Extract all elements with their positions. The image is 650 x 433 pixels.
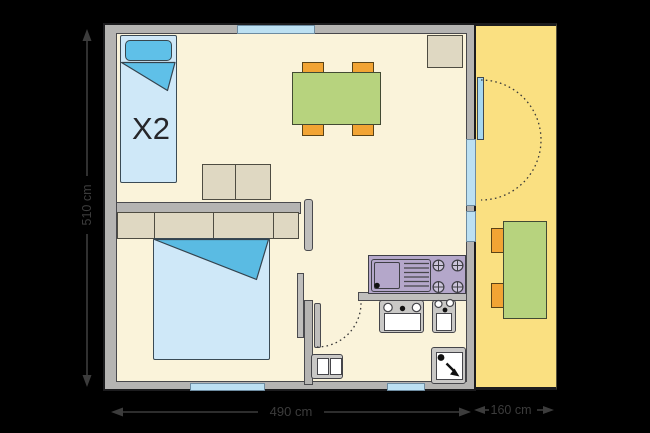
wardrobe-icon	[117, 212, 299, 239]
pillow-icon	[125, 40, 172, 61]
toilet-lid	[317, 358, 329, 375]
dimension-terrace-label: 160 cm	[484, 402, 538, 417]
window-icon	[387, 383, 425, 392]
bedroom-door-leaf	[304, 199, 313, 251]
toilet-lid	[330, 358, 342, 375]
terrace-floor	[476, 23, 557, 390]
cupboard-icon	[427, 35, 463, 68]
window-icon	[237, 25, 315, 34]
window-icon	[466, 139, 476, 206]
wardrobe-divider	[154, 213, 155, 238]
washbasin-bowl	[436, 313, 452, 332]
double-bed-icon	[153, 238, 270, 360]
bathroom-panel	[297, 273, 304, 338]
sink-bowl	[374, 262, 400, 289]
dimension-left-label: 510 cm	[79, 178, 95, 232]
floor-plan: X2 510 cm 490 cm 160 cm	[0, 0, 650, 433]
washbasin-bowl	[384, 313, 421, 331]
shower-tray	[436, 352, 463, 380]
window-icon	[190, 383, 265, 392]
window-icon	[466, 211, 476, 242]
dimension-bottom-label: 490 cm	[261, 404, 321, 420]
terrace-table-icon	[503, 221, 547, 319]
bathroom-door-leaf	[314, 303, 321, 348]
sofa-icon	[202, 164, 271, 200]
wardrobe-divider	[273, 213, 274, 238]
wardrobe-divider	[213, 213, 214, 238]
sofa-divider	[235, 165, 236, 199]
dining-table-icon	[292, 72, 381, 125]
bed-multiplier-label: X2	[124, 110, 178, 148]
terrace-door-leaf	[477, 77, 484, 140]
